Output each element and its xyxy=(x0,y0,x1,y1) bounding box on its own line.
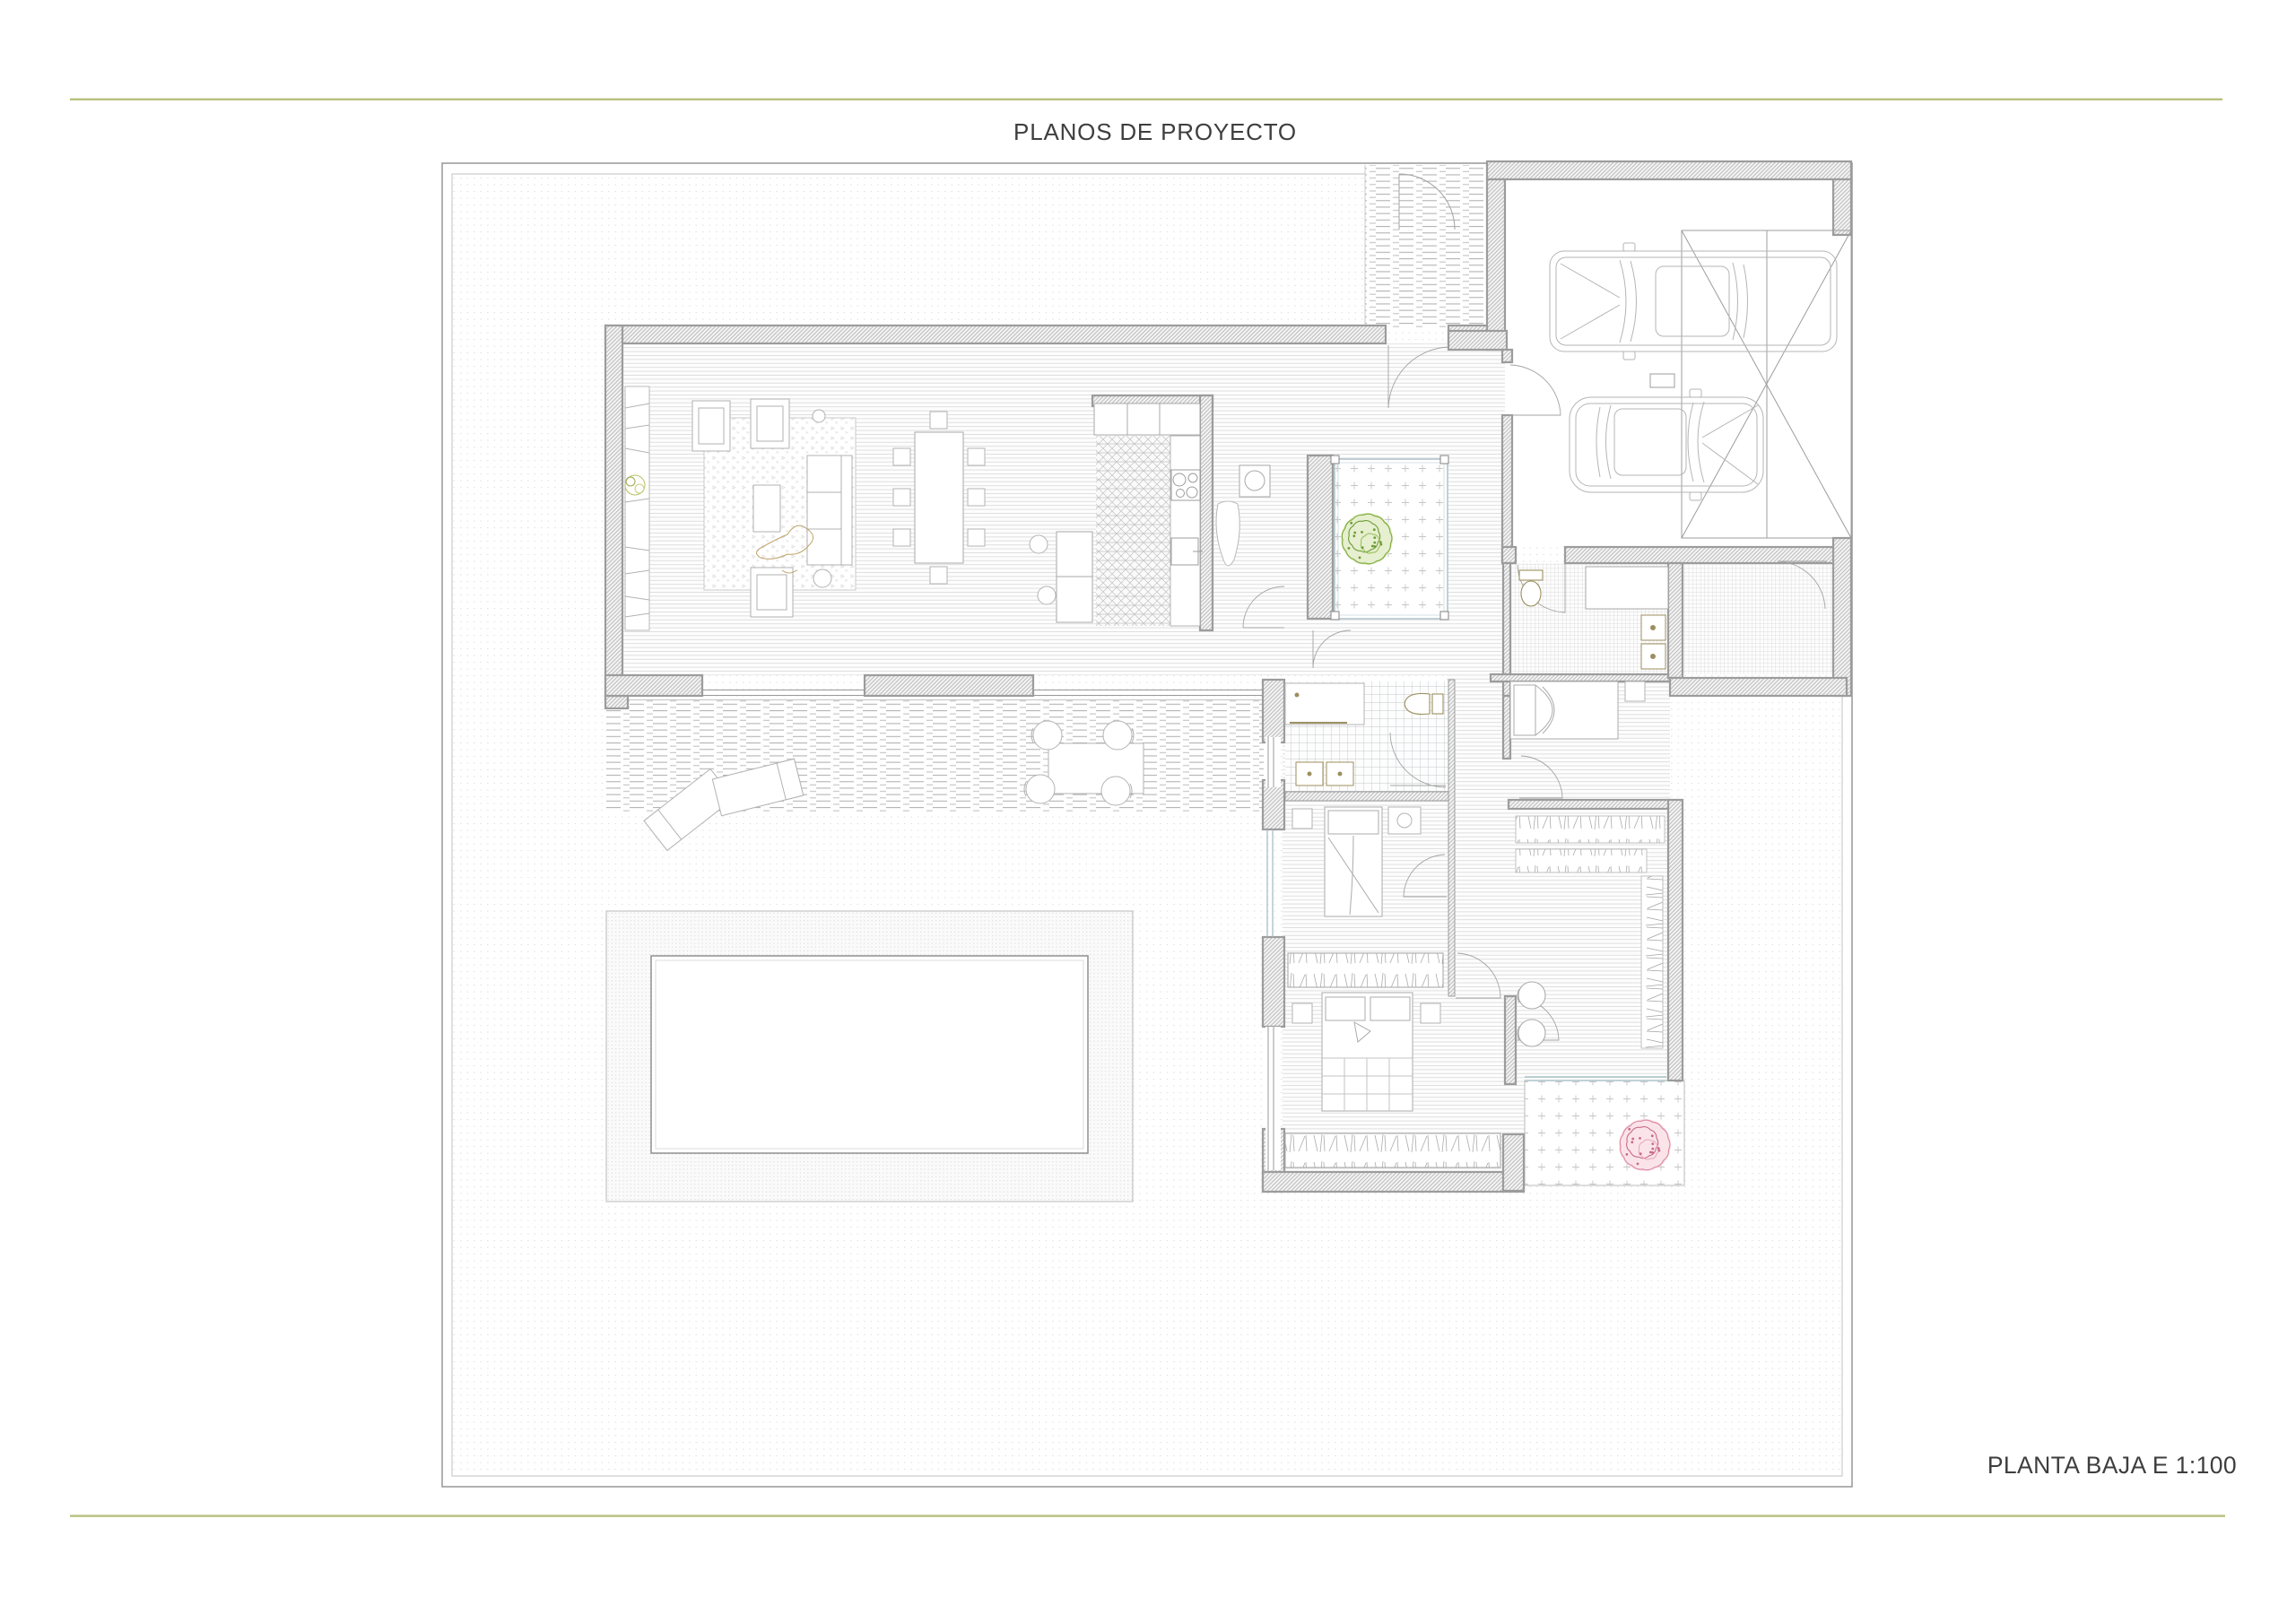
svg-text:PLANOS DE PROYECTO: PLANOS DE PROYECTO xyxy=(1013,118,1297,145)
svg-text:PLANTA BAJA E 1:100: PLANTA BAJA E 1:100 xyxy=(1987,1452,2237,1479)
